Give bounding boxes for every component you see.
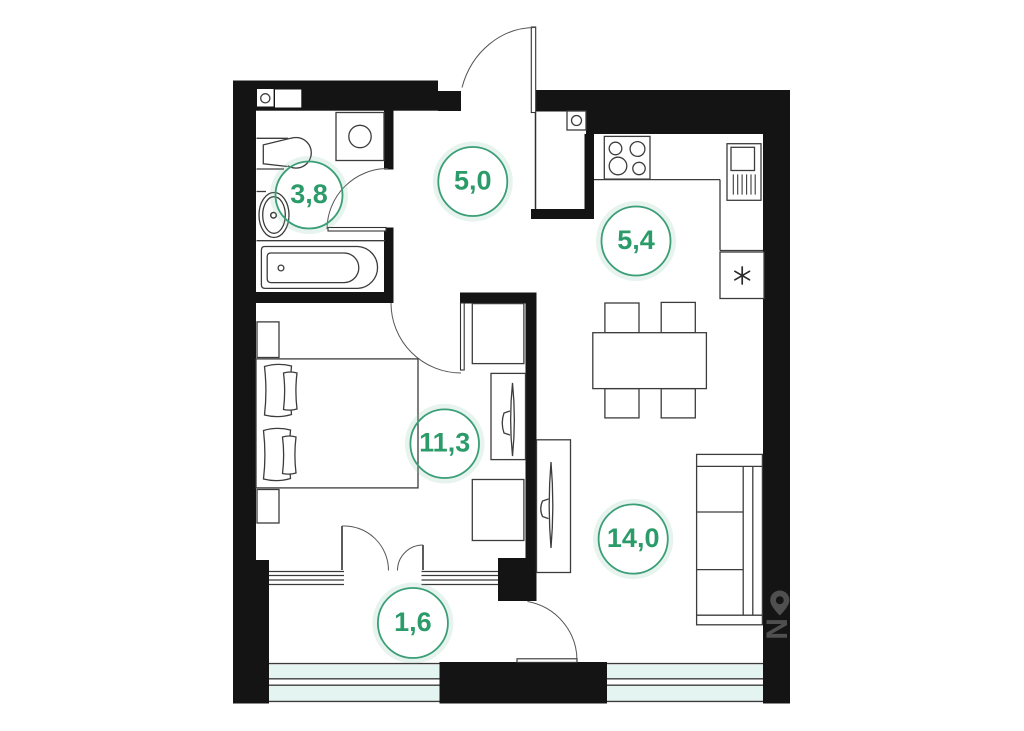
svg-text:5,0: 5,0: [454, 166, 492, 196]
svg-text:11,3: 11,3: [419, 428, 470, 458]
svg-text:3,8: 3,8: [290, 179, 328, 209]
svg-text:14,0: 14,0: [607, 523, 660, 553]
svg-text:5,4: 5,4: [617, 225, 655, 255]
svg-text:1,6: 1,6: [394, 607, 432, 637]
svg-text:N: N: [760, 618, 793, 640]
